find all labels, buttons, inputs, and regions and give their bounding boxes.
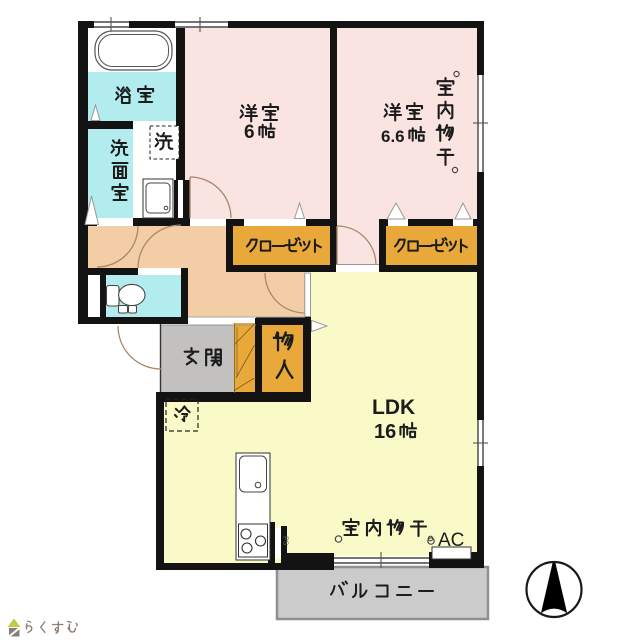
svg-text:LDK: LDK	[372, 396, 415, 419]
svg-text:AC: AC	[438, 530, 464, 551]
svg-text:16: 16	[374, 421, 396, 443]
svg-text:6.6: 6.6	[381, 127, 405, 146]
svg-text:PS: PS	[282, 536, 289, 546]
svg-text:6: 6	[244, 122, 255, 143]
